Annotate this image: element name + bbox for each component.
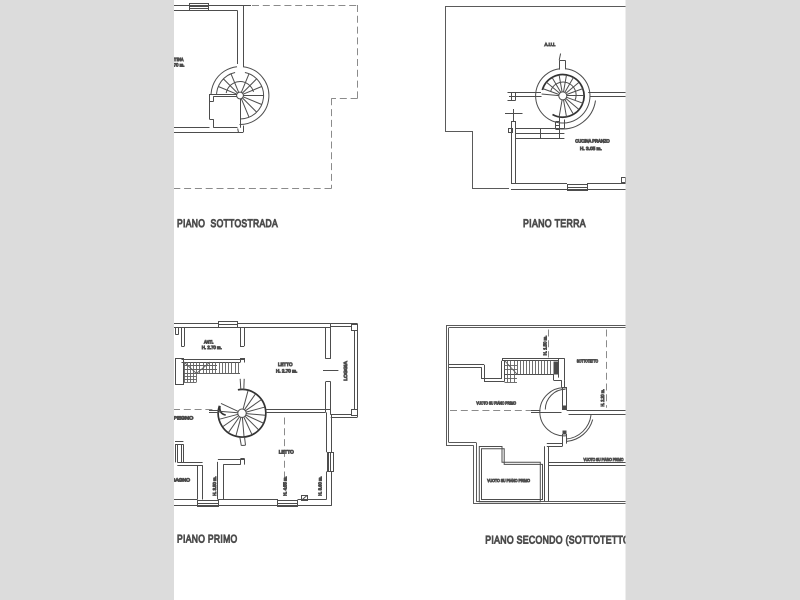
svg-text:PIANO SECONDO (SOTTOTETTO): PIANO SECONDO (SOTTOTETTO) [485,534,633,546]
svg-text:SOTTOTETTO: SOTTOTETTO [577,358,599,363]
svg-text:H. 3.05 m.: H. 3.05 m. [580,146,602,151]
svg-text:PIANO SOTTOSTRADA: PIANO SOTTOSTRADA [177,218,278,230]
svg-text:H. 4.55 m.: H. 4.55 m. [282,476,287,496]
svg-text:H. 2.20 m.: H. 2.20 m. [600,389,605,407]
svg-text:H. 3.60 m.: H. 3.60 m. [317,476,322,496]
svg-text:H. 1.50 m.: H. 1.50 m. [543,336,548,356]
svg-text:A.U.I.: A.U.I. [545,42,556,47]
svg-text:VUOTO SU PIANO PRIMO: VUOTO SU PIANO PRIMO [487,478,530,483]
svg-text:VUOTO SU PIANO PRIMO: VUOTO SU PIANO PRIMO [584,457,625,462]
svg-text:CUCINA PRANZO: CUCINA PRANZO [575,139,610,144]
svg-text:H. 2.70 m.: H. 2.70 m. [276,368,297,373]
svg-text:H. 3.50 m.: H. 3.50 m. [212,476,217,496]
svg-text:LETTO: LETTO [279,450,294,456]
svg-text:LETTO: LETTO [278,362,293,368]
svg-text:PIANO PRIMO: PIANO PRIMO [177,534,238,546]
svg-text:LOGGIA: LOGGIA [343,361,348,381]
svg-text:H. 2.70 m.: H. 2.70 m. [202,345,222,350]
svg-text:PIANO TERRA: PIANO TERRA [523,218,586,230]
svg-text:ANTI.: ANTI. [204,339,214,344]
svg-text:VUOTO SU PIANO PRIMO: VUOTO SU PIANO PRIMO [476,401,516,406]
svg-text:BAGNO: BAGNO [172,477,190,482]
